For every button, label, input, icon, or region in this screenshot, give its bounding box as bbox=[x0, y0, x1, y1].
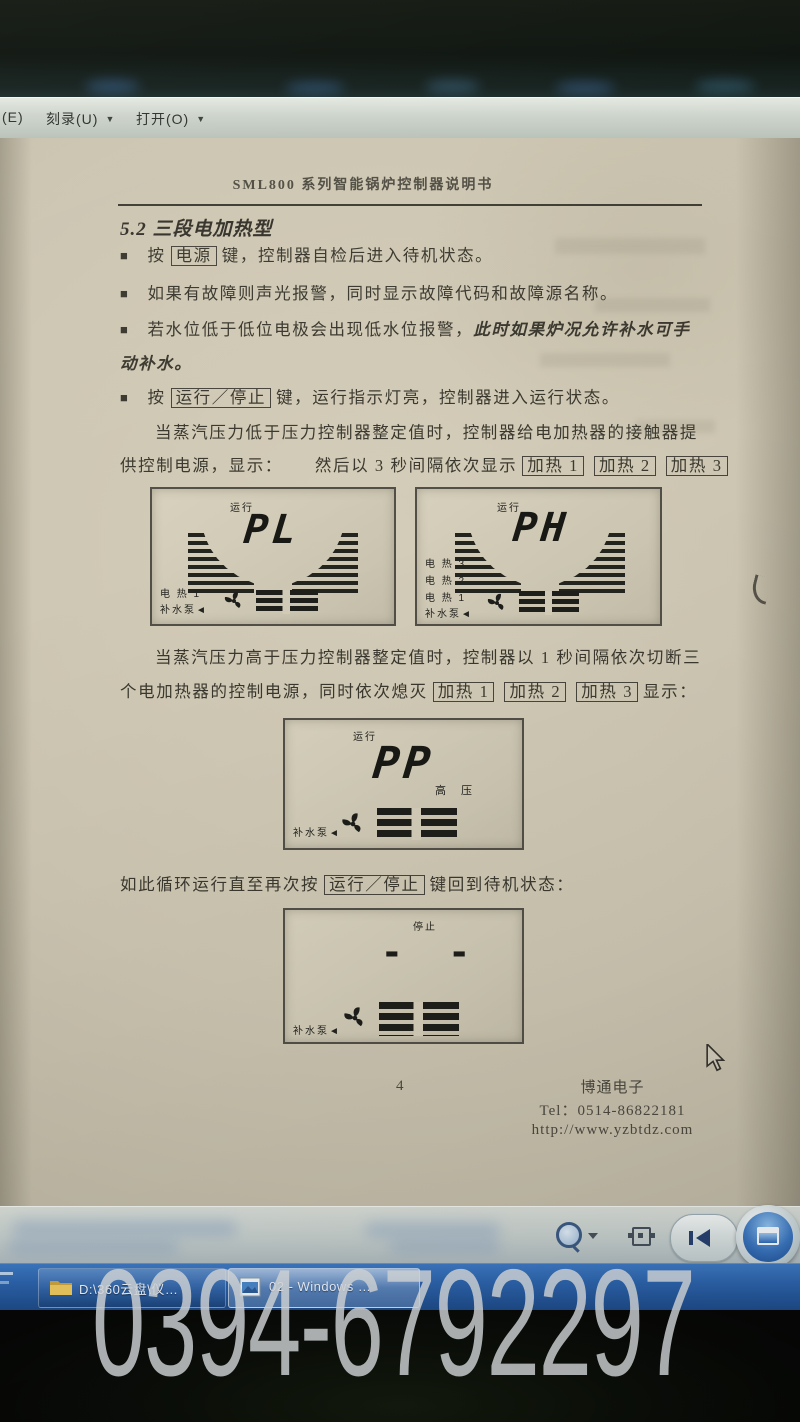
menu-item-open-label: 打开(O) bbox=[136, 111, 189, 127]
page-bleed-through bbox=[555, 238, 705, 254]
lcd-display-overpressure: 运行 PP 高 压 补水泵◄ bbox=[283, 718, 524, 850]
bullet-low-water-text: 若水位低于低位电极会出现低水位报警， bbox=[147, 320, 473, 339]
header-rule bbox=[118, 204, 702, 206]
photo-viewer-menubar: (E) 刻录(U)▼ 打开(O)▼ bbox=[0, 97, 800, 140]
lcd-heat3-label: 电 热 3 bbox=[425, 555, 466, 570]
bullet-fault-text: 如果有故障则声光报警，同时显示故障代码和故障源名称。 bbox=[147, 284, 618, 303]
heater-element-icon bbox=[519, 591, 579, 615]
para3-a: 如此循环运行直至再次按 bbox=[120, 875, 319, 894]
lcd-display-low-pressure: 运行 PL 电 热 1 补水泵◄ bbox=[150, 487, 396, 626]
para2-line2a: 个电加热器的控制电源，同时依次熄灭 bbox=[120, 682, 428, 701]
lcd-level-bars-right bbox=[292, 533, 358, 593]
heater-element-icon bbox=[377, 808, 457, 840]
para1-line2a: 供控制电源，显示： bbox=[120, 456, 283, 475]
mouse-cursor bbox=[704, 1044, 728, 1072]
heat1-key-label: 加热 1 bbox=[433, 682, 495, 702]
lcd-heat1-label: 电 热 1 bbox=[425, 589, 466, 604]
taskbar-edge-artifact bbox=[0, 1272, 13, 1275]
bullet-fault: ■如果有故障则声光报警，同时显示故障代码和故障源名称。 bbox=[120, 280, 618, 304]
para3: 如此循环运行直至再次按运行／停止键回到待机状态： bbox=[120, 871, 574, 895]
para2-line2: 个电加热器的控制电源，同时依次熄灭加热 1加热 2加热 3显示： bbox=[120, 678, 697, 702]
menu-item-open[interactable]: 打开(O)▼ bbox=[136, 109, 206, 129]
run-stop-key-label: 运行／停止 bbox=[324, 875, 425, 895]
lcd-pump-label: 补水泵◄ bbox=[425, 605, 473, 620]
document-page: SML800 系列智能锅炉控制器说明书 5.2 三段电加热型 ■按电源键，控制器… bbox=[0, 138, 800, 1206]
bullet-power: ■按电源键，控制器自检后进入待机状态。 bbox=[120, 242, 493, 266]
lcd-pump-label: 补水泵◄ bbox=[293, 824, 341, 839]
menu-item-burn[interactable]: 刻录(U)▼ bbox=[46, 109, 115, 129]
para2-line2b: 显示： bbox=[643, 682, 697, 701]
taskbar-edge-artifact bbox=[0, 1281, 9, 1284]
lcd-code-pl: PL bbox=[242, 507, 303, 553]
lcd-heat2-label: 电 热 2 bbox=[425, 572, 466, 587]
para1-line2b: 然后以 3 秒间隔依次显示 bbox=[315, 456, 517, 475]
para1-line2: 供控制电源，显示：然后以 3 秒间隔依次显示加热 1加热 2加热 3 bbox=[120, 452, 733, 476]
page-number: 4 bbox=[396, 1078, 405, 1095]
heater-element-icon bbox=[379, 1002, 459, 1036]
bullet-marker: ■ bbox=[120, 390, 129, 405]
bullet-marker: ■ bbox=[120, 248, 129, 263]
bullet-marker: ■ bbox=[120, 286, 129, 301]
paper-crease-mark bbox=[749, 574, 772, 604]
lcd-display-high-pressure: 运行 PH 电 热 3 电 热 2 电 热 1 补水泵◄ bbox=[415, 487, 662, 626]
section-title: 5.2 三段电加热型 bbox=[120, 214, 273, 241]
heat2-key-label: 加热 2 bbox=[504, 682, 566, 702]
screen-reflection bbox=[555, 82, 615, 94]
lcd-pump-label: 补水泵◄ bbox=[160, 601, 208, 616]
fan-icon bbox=[339, 810, 367, 838]
folder-icon bbox=[49, 1277, 73, 1297]
page-bleed-through bbox=[540, 353, 670, 367]
footer-company: 博通电子 bbox=[520, 1076, 705, 1097]
bullet-run-stop: ■按运行／停止键，运行指示灯亮，控制器进入运行状态。 bbox=[120, 384, 620, 408]
para1-line1: 当蒸汽压力低于压力控制器整定值时，控制器给电加热器的接触器提 bbox=[155, 419, 698, 443]
menu-item-email[interactable]: (E) bbox=[2, 109, 24, 125]
screen-reflection bbox=[285, 82, 345, 94]
watermark-phone-number: 0394-6792297 bbox=[92, 1247, 695, 1399]
bullet-run-text2: 键，运行指示灯亮，控制器进入运行状态。 bbox=[276, 388, 620, 407]
bullet-low-water-cont: 动补水。 bbox=[120, 350, 192, 374]
screen-reflection bbox=[85, 80, 140, 93]
bullet-low-water: ■若水位低于低位电极会出现低水位报警，此时如果炉况允许补水可手 bbox=[120, 316, 690, 340]
para2-line1: 当蒸汽压力高于压力控制器整定值时，控制器以 1 秒间隔依次切断三 bbox=[155, 644, 701, 668]
lcd-display-standby: 停止 - - 补水泵◄ bbox=[283, 908, 524, 1044]
bullet-low-water-italic: 此时如果炉况允许补水可手 bbox=[473, 320, 690, 339]
fan-icon bbox=[341, 1004, 369, 1032]
chevron-down-icon: ▼ bbox=[105, 114, 115, 124]
heat3-key-label: 加热 3 bbox=[576, 682, 638, 702]
bullet-power-text: 按 bbox=[147, 246, 165, 265]
heat3-key-label: 加热 3 bbox=[666, 456, 728, 476]
lcd-high-pressure-label: 高 压 bbox=[435, 782, 478, 798]
lcd-stop-indicator: 停止 bbox=[413, 918, 437, 933]
doc-header-title: SML800 系列智能锅炉控制器说明书 bbox=[0, 174, 726, 194]
slideshow-icon bbox=[743, 1212, 793, 1262]
bullet-run-text: 按 bbox=[147, 388, 165, 407]
heat1-key-label: 加热 1 bbox=[522, 456, 584, 476]
toolbar-reflection bbox=[12, 1221, 237, 1236]
bullet-marker: ■ bbox=[120, 322, 129, 337]
bullet-power-text2: 键，控制器自检后进入待机状态。 bbox=[222, 246, 494, 265]
power-key-label: 电源 bbox=[171, 246, 217, 266]
fan-icon bbox=[222, 589, 246, 613]
run-stop-key-label: 运行／停止 bbox=[171, 388, 272, 408]
slideshow-button[interactable] bbox=[736, 1205, 800, 1269]
screen-reflection bbox=[695, 80, 755, 93]
heat2-key-label: 加热 2 bbox=[594, 456, 656, 476]
heater-element-icon bbox=[256, 590, 318, 614]
lcd-heat1-label: 电 热 1 bbox=[160, 585, 201, 600]
footer-tel: Tel：0514-86822181 bbox=[520, 1099, 705, 1120]
lcd-code-ph: PH bbox=[511, 505, 572, 551]
fan-icon bbox=[485, 591, 509, 615]
lcd-standby-dashes: - - bbox=[381, 932, 482, 973]
toolbar-reflection bbox=[365, 1223, 500, 1237]
monitor-top-bezel bbox=[0, 0, 800, 97]
footer-url: http://www.yzbtdz.com bbox=[520, 1122, 705, 1139]
lcd-level-bars-right bbox=[559, 533, 625, 593]
screen-photo: (E) 刻录(U)▼ 打开(O)▼ SML800 系列智能锅炉控制器说明书 5.… bbox=[0, 0, 800, 1422]
para3-b: 键回到待机状态： bbox=[430, 875, 575, 894]
screen-reflection bbox=[425, 80, 480, 93]
chevron-down-icon: ▼ bbox=[196, 114, 206, 124]
lcd-run-indicator: 运行 bbox=[353, 728, 377, 743]
lcd-code-pp: PP bbox=[370, 738, 436, 789]
lcd-pump-label: 补水泵◄ bbox=[293, 1022, 341, 1037]
menu-item-burn-label: 刻录(U) bbox=[46, 111, 98, 127]
